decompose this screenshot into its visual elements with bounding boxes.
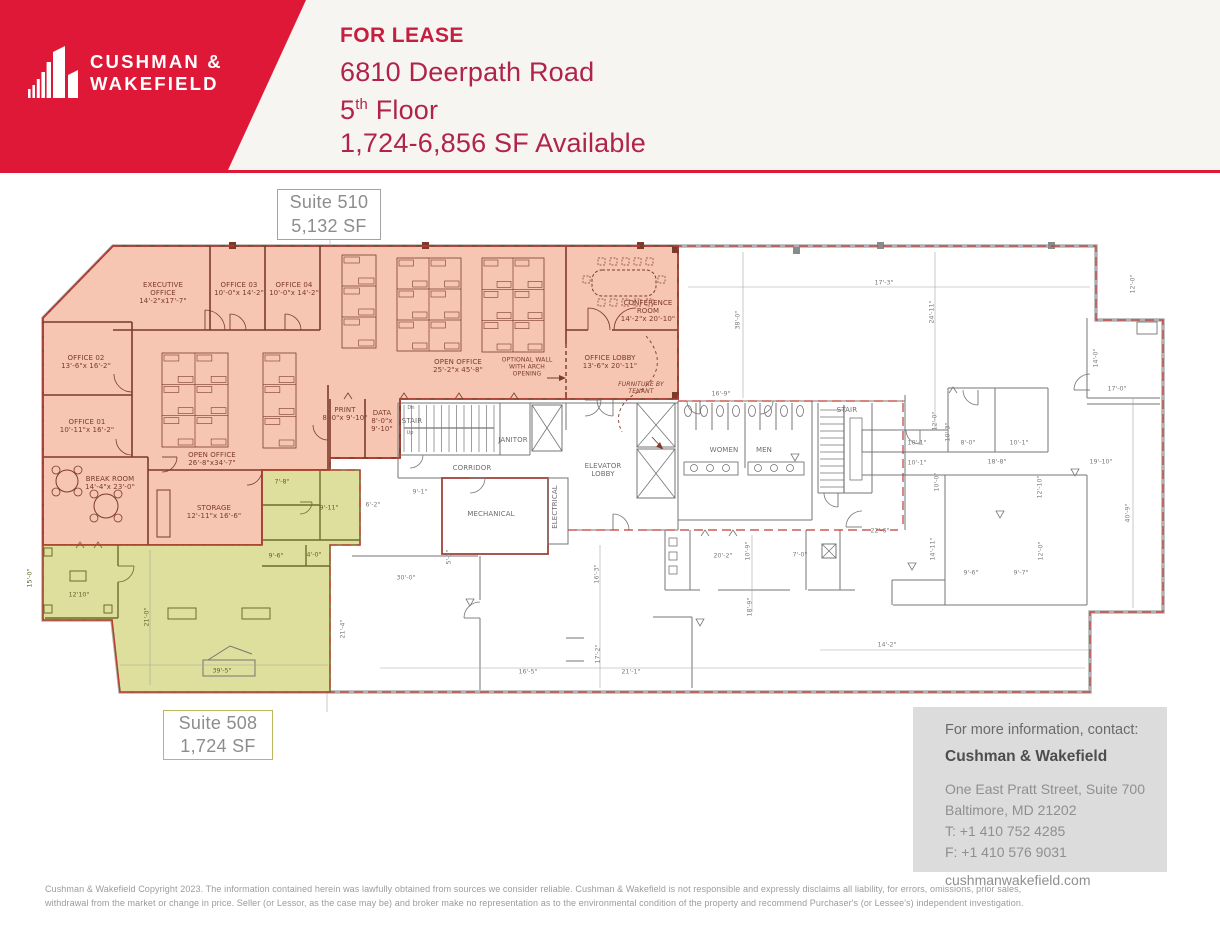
contact-address2: Baltimore, MD 21202 — [945, 800, 1157, 821]
suite-510-area: 5,132 SF — [291, 215, 366, 238]
contact-heading: For more information, contact: — [945, 722, 1157, 738]
suite-508-area: 1,724 SF — [180, 735, 255, 758]
flyer-page: CUSHMAN & WAKEFIELD FOR LEASE 6810 Deerp… — [0, 0, 1220, 940]
contact-fax: F: +1 410 576 9031 — [945, 842, 1157, 863]
disclaimer: Cushman & Wakefield Copyright 2023. The … — [45, 883, 1193, 910]
contact-box: For more information, contact: Cushman &… — [913, 707, 1167, 872]
contact-phone: T: +1 410 752 4285 — [945, 821, 1157, 842]
disclaimer-line1: Cushman & Wakefield Copyright 2023. The … — [45, 883, 1193, 897]
suite-508-callout: Suite 508 1,724 SF — [163, 710, 273, 760]
disclaimer-line2: withdrawal from the market or change in … — [45, 897, 1193, 911]
suite-508-name: Suite 508 — [179, 712, 258, 735]
contact-address1: One East Pratt Street, Suite 700 — [945, 779, 1157, 800]
contact-company: Cushman & Wakefield — [945, 748, 1157, 766]
suite-510-callout: Suite 510 5,132 SF — [277, 189, 381, 240]
suite-510-name: Suite 510 — [290, 191, 369, 214]
